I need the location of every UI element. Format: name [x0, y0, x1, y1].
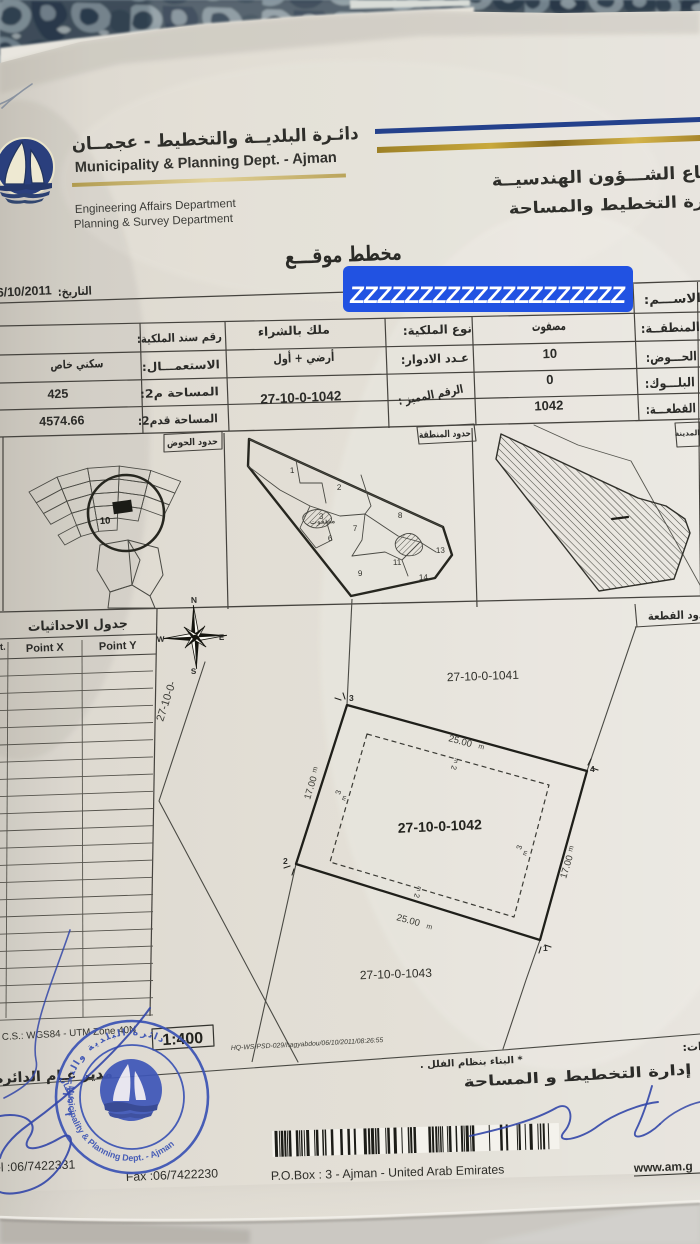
svg-text:13: 13 [436, 546, 446, 555]
svg-text:27-10-0-1043: 27-10-0-1043 [360, 966, 433, 983]
svg-text:1042: 1042 [534, 398, 563, 414]
svg-text:06/10/2011: 06/10/2011 [0, 283, 52, 300]
svg-text:27-10-0-1041: 27-10-0-1041 [447, 668, 520, 685]
svg-text:11: 11 [393, 558, 402, 567]
svg-text:Point Y: Point Y [99, 640, 138, 653]
svg-text:ZZZZZZZZZZZZZZZZZZZZ: ZZZZZZZZZZZZZZZZZZZZ [348, 282, 626, 309]
svg-text:4574.66: 4574.66 [39, 413, 85, 429]
svg-text:N: N [191, 595, 197, 605]
svg-text:t.: t. [0, 642, 6, 653]
svg-text:Point X: Point X [26, 642, 65, 655]
svg-text:14: 14 [419, 573, 429, 582]
svg-text:E: E [219, 633, 225, 642]
svg-text:10: 10 [100, 515, 111, 527]
svg-text:425: 425 [47, 387, 68, 402]
svg-text:S: S [191, 667, 197, 676]
svg-text:www.am.g: www.am.g [633, 1159, 693, 1175]
svg-text:0: 0 [546, 372, 554, 387]
svg-text:10: 10 [542, 346, 557, 361]
svg-text:2: 2 [283, 856, 288, 866]
svg-text:3: 3 [349, 693, 354, 703]
svg-text:4: 4 [590, 764, 595, 774]
svg-text:1: 1 [543, 943, 548, 953]
svg-text:W: W [157, 635, 165, 644]
